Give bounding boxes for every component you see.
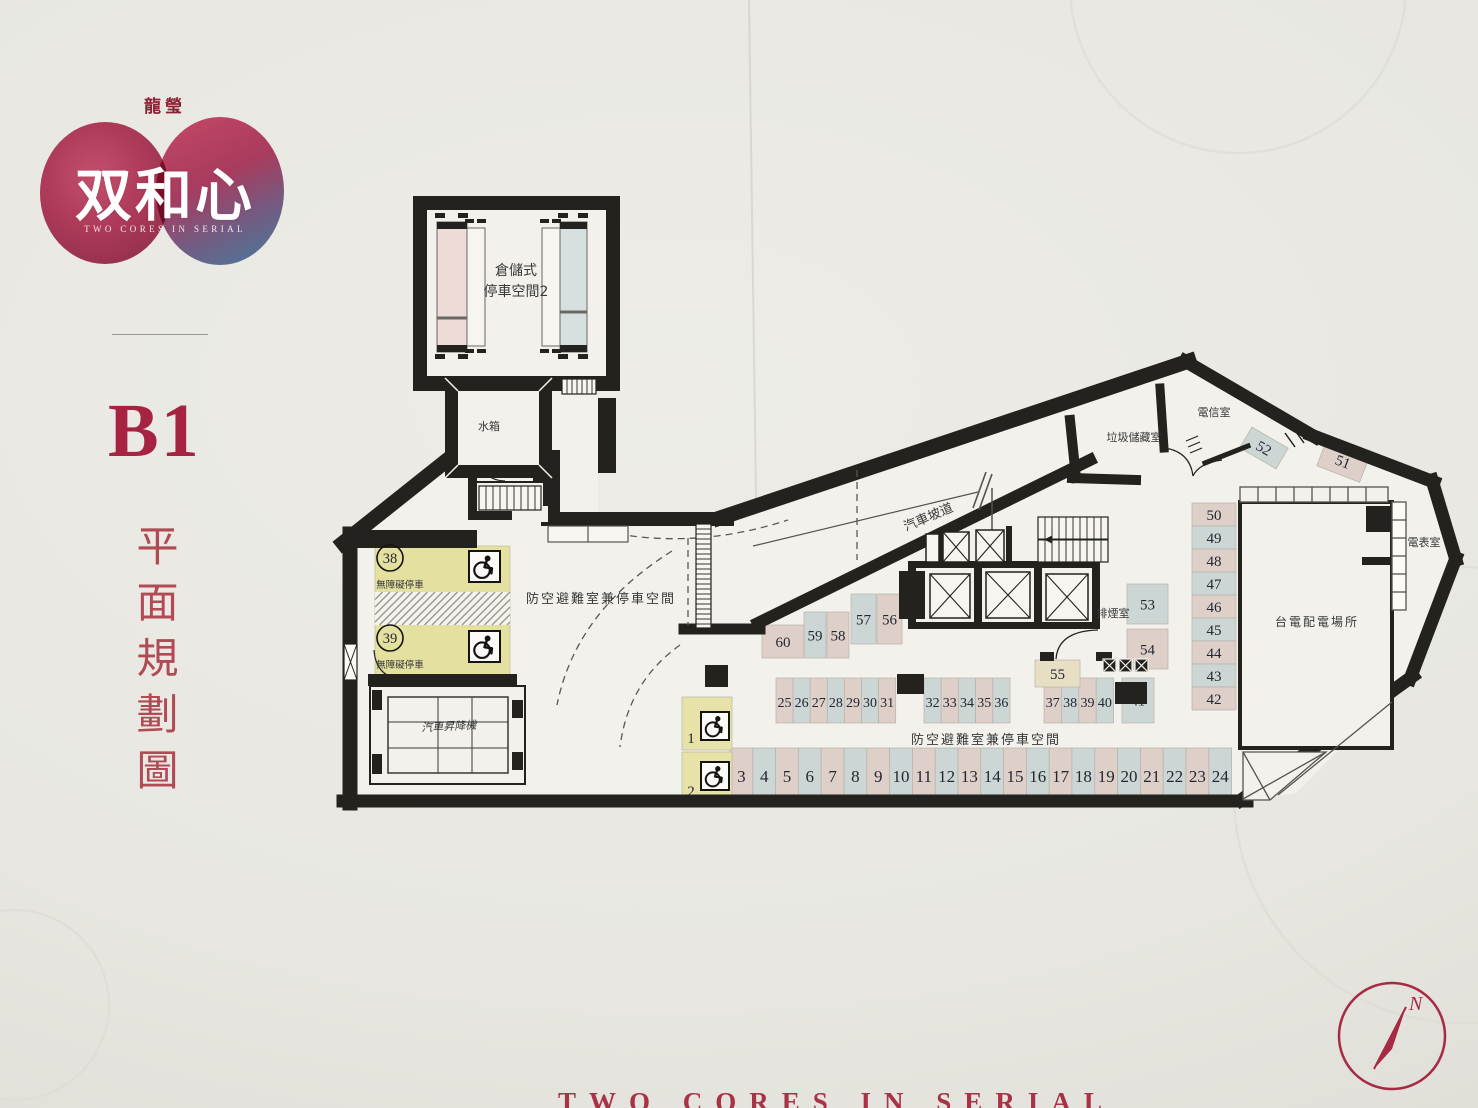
parking-spot-number: 50 (1207, 508, 1222, 524)
parking-spot-number: 6 (806, 767, 815, 786)
parking-spot-number: 55 (1050, 667, 1065, 683)
parking-spot-number: 1 (687, 731, 695, 747)
parking-spot-number: 40 (1098, 696, 1112, 711)
parking-spot-number: 21 (1143, 767, 1160, 786)
parking-spot-number: 35 (977, 696, 991, 711)
stair-core (1038, 517, 1108, 562)
parking-spot-number: 13 (961, 767, 978, 786)
room-label-shelter-parking-left: 防空避難室兼停車空間 (526, 591, 676, 607)
parking-spot-number: 8 (851, 767, 860, 786)
parking-spot-number: 53 (1140, 597, 1155, 613)
room-label-shelter-parking-bottom: 防空避難室兼停車空間 (911, 732, 1061, 748)
room-label-smoke-exhaust-room: 排煙室 (1097, 606, 1130, 620)
room-label-telecom-room: 電信室 (1198, 405, 1231, 419)
cable-tray (1240, 487, 1388, 502)
stair-upper (562, 379, 596, 394)
parking-spot-number: 29 (846, 696, 860, 711)
parking-spot-number: 17 (1052, 767, 1070, 786)
parking-spot-number: 4 (760, 767, 769, 786)
parking-spot-number: 12 (938, 767, 955, 786)
parking-spot-number: 10 (893, 767, 910, 786)
parking-spot-number: 7 (828, 767, 837, 786)
parking-spot-number: 24 (1212, 767, 1230, 786)
photo-of-floor-plan-board: 龍瑩 双和心 TWO CORES IN SERIAL B1 平面規劃圖 (0, 0, 1478, 1108)
room-label-meter-room: 電表室 (1408, 535, 1441, 549)
parking-spot-number: 36 (994, 696, 1008, 711)
parking-spot-number: 26 (795, 696, 809, 711)
vent-boxes (1103, 659, 1148, 672)
parking-spot-number: 19 (1098, 767, 1115, 786)
parking-spot-number: 56 (882, 612, 898, 628)
left-wall-window (344, 644, 357, 680)
parking-spot-number: 34 (960, 696, 974, 711)
wheelchair-icon (469, 551, 500, 582)
parking-spot-number: 5 (783, 767, 792, 786)
parking-spot-number: 39 (1081, 696, 1095, 711)
parking-spot-number: 58 (831, 628, 846, 644)
parking-spot-number: 15 (1007, 767, 1024, 786)
parking-spot-number: 16 (1029, 767, 1046, 786)
parking-spot-number: 45 (1207, 623, 1222, 639)
parking-spot-number: 48 (1207, 554, 1222, 570)
parking-spot-number: 43 (1207, 669, 1222, 685)
stair-corridor (479, 486, 541, 510)
meter-cabinets (1392, 502, 1406, 610)
room-label-taipower-distribution-room: 台電配電場所 (1275, 614, 1359, 629)
parking-spot-number: 59 (808, 628, 823, 644)
parking-spot-number: 20 (1121, 767, 1138, 786)
parking-spot-number: 57 (856, 612, 872, 628)
room-label-garbage-storage-room: 垃圾儲藏室 (1107, 430, 1162, 444)
cabinet-cells-top (548, 526, 628, 542)
circled-number-text: 38 (383, 551, 398, 567)
parking-spot-number: 32 (926, 696, 940, 711)
parking-spot-number: 25 (778, 696, 792, 711)
room-label-accessible-parking-label-1: 無障礙停車 (376, 579, 424, 591)
parking-spot-number: 54 (1140, 642, 1156, 658)
paper-crease (749, 0, 757, 565)
parking-spot-number: 33 (943, 696, 957, 711)
room-label-storage-room-line1: 倉儲式 (495, 263, 537, 279)
parking-spot-number: 31 (880, 696, 894, 711)
ramp-edge-ladder (696, 524, 711, 628)
parking-spot-number: 18 (1075, 767, 1092, 786)
parking-spot-number: 60 (776, 635, 791, 651)
room-label-storage-room-line2: 停車空間2 (484, 283, 549, 300)
parking-spot-number: 27 (812, 696, 826, 711)
parking-spot-number: 37 (1046, 696, 1060, 711)
parking-spot-number: 11 (916, 767, 932, 786)
parking-spot-number: 49 (1207, 531, 1222, 547)
compass-north-label: N (1408, 993, 1424, 1015)
wheelchair-icon (701, 712, 729, 740)
parking-spot-number: 47 (1207, 577, 1223, 593)
parking-spot-number: 23 (1189, 767, 1206, 786)
wheelchair-icon (469, 631, 500, 662)
parking-spot-number: 46 (1207, 600, 1223, 616)
wheelchair-icon (701, 762, 729, 790)
parking-spot-number: 42 (1207, 692, 1222, 708)
parking-spot-number: 9 (874, 767, 883, 786)
parking-spot-number: 14 (984, 767, 1002, 786)
parking-spot-number: 30 (863, 696, 877, 711)
parking-spot-number: 22 (1166, 767, 1183, 786)
circled-number-text: 39 (383, 631, 398, 647)
footer-tagline: TWO CORES IN SERIAL (558, 1087, 1058, 1108)
room-label-accessible-parking-label-2: 無障礙停車 (376, 659, 424, 671)
compass: N (1339, 983, 1445, 1089)
floor-plan-svg: 3456789101112131415161718192021222324252… (0, 0, 1478, 1108)
parking-spot-number: 3 (737, 767, 746, 786)
parking-spot-number: 28 (829, 696, 843, 711)
parking-spot-number: 44 (1207, 646, 1223, 662)
room-label-water-tank-room: 水箱 (478, 419, 500, 433)
parking-spot-number: 38 (1063, 696, 1077, 711)
